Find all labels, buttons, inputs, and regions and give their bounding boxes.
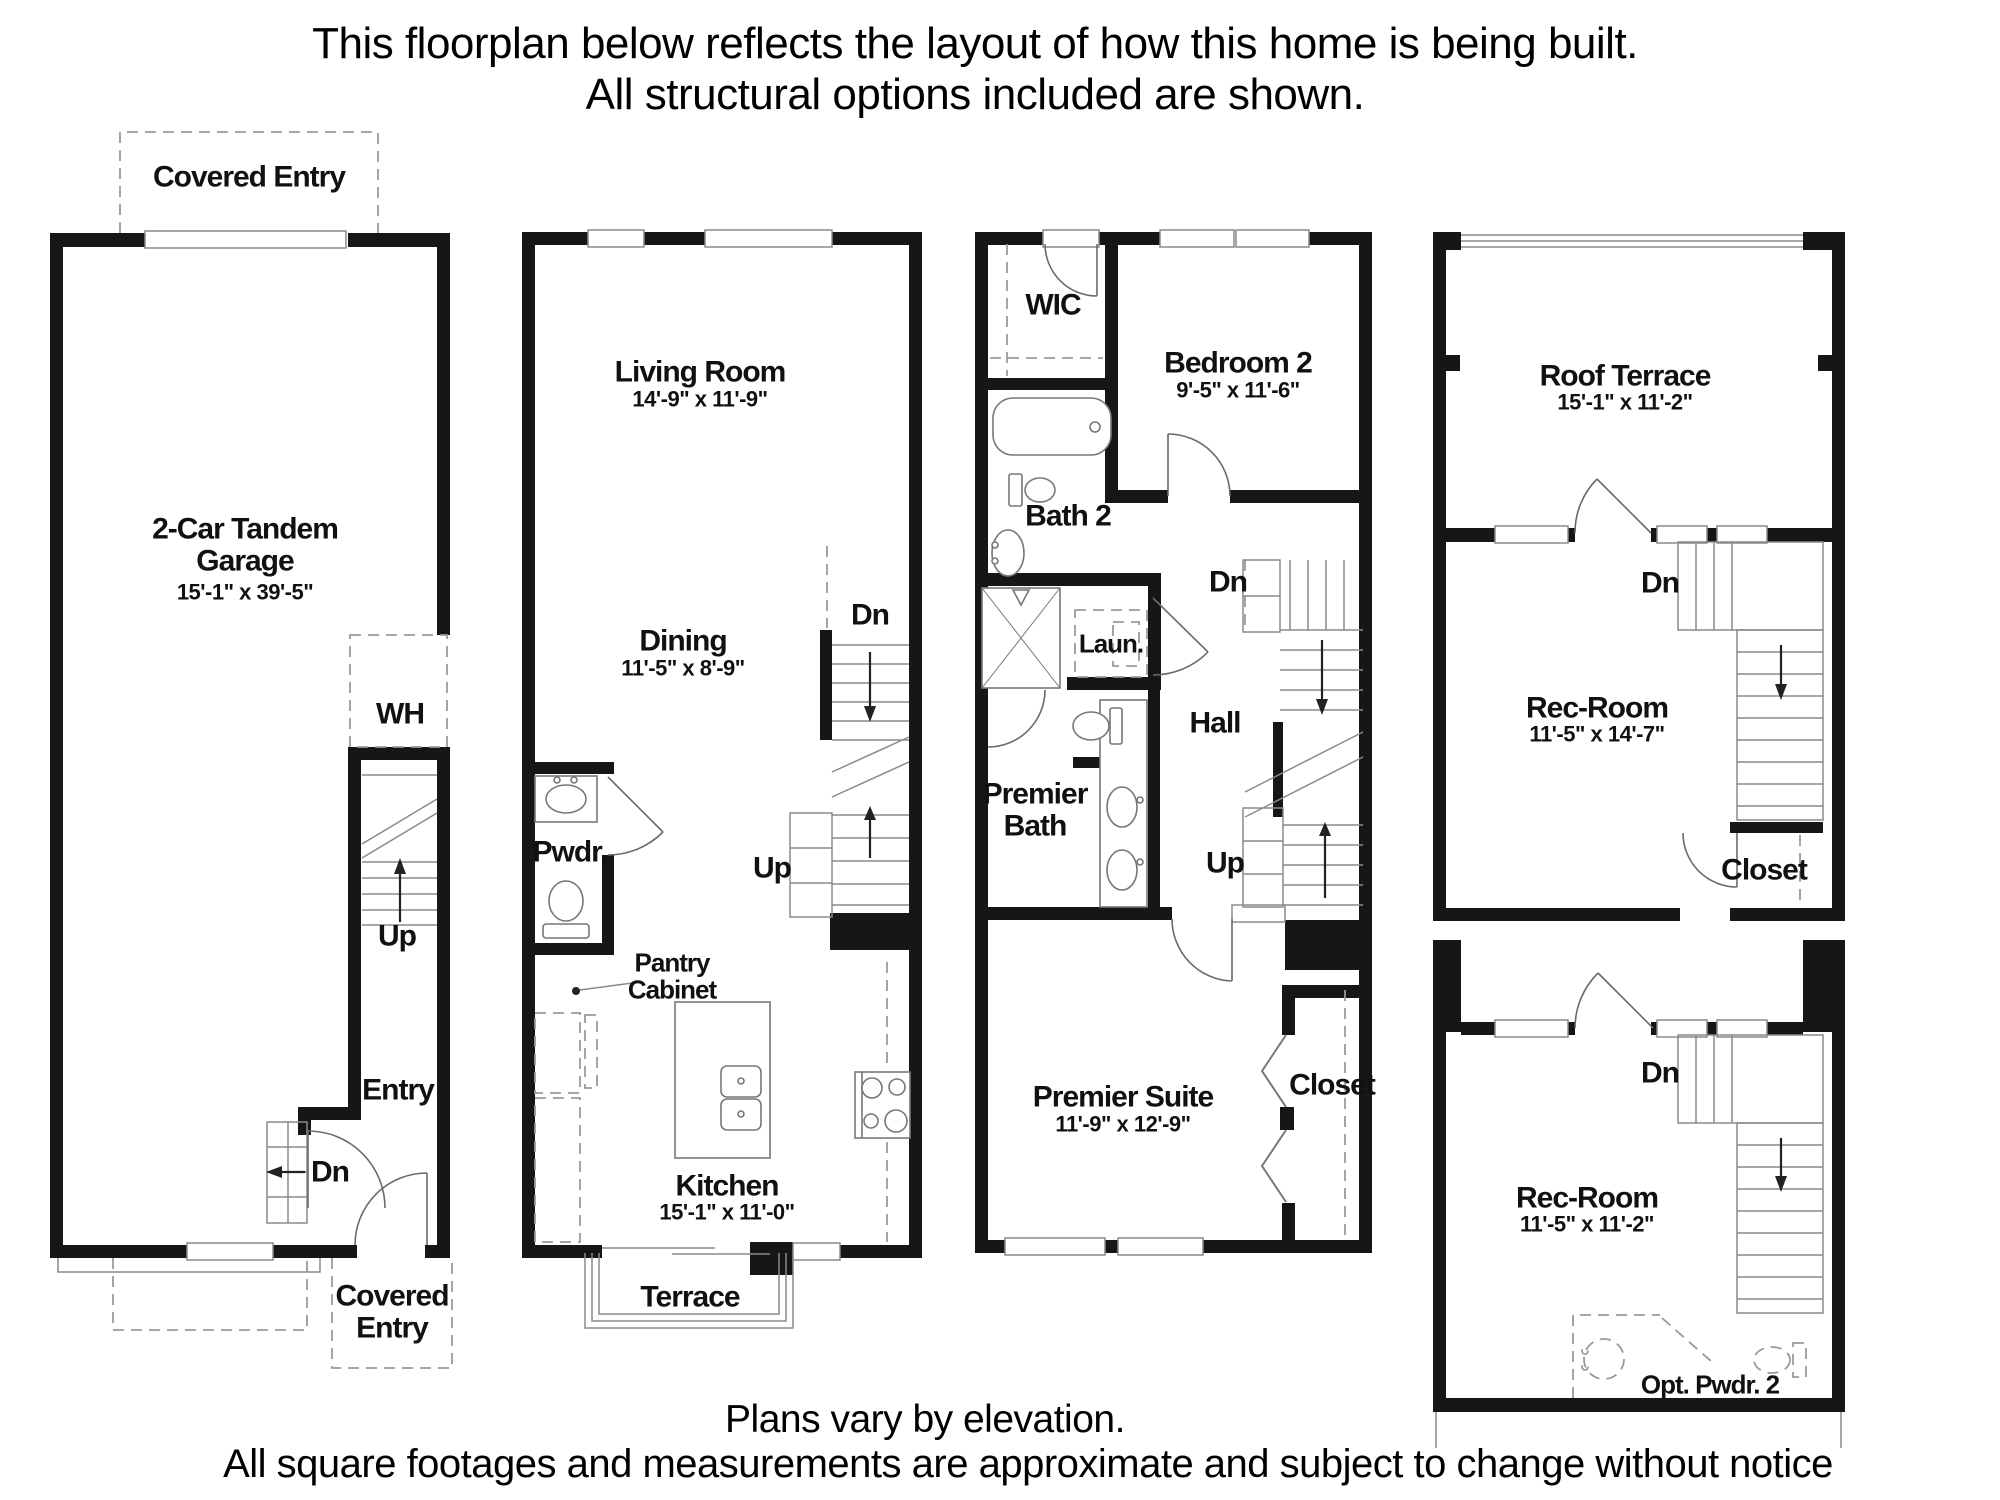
pantry-leader-dot <box>572 987 580 995</box>
label-premier-suite: Premier Suite <box>1033 1081 1213 1113</box>
label-kitchen-dims: 15'-1" x 11'-0" <box>659 1200 794 1223</box>
label-up: Up <box>378 920 416 952</box>
kitchen-island <box>675 1002 770 1158</box>
label-bedroom2: Bedroom 2 <box>1164 347 1312 379</box>
floorplan-garage-level <box>50 132 452 1368</box>
label-premier-bath: Premier Bath <box>960 779 1110 842</box>
label-wh: WH <box>376 698 424 730</box>
rec-upper-stairs <box>1678 542 1823 820</box>
bathtub <box>993 398 1111 455</box>
label-covered-entry-top: Covered Entry <box>153 161 345 193</box>
rec-level-windows <box>1495 526 1767 1037</box>
label-up: Up <box>1206 847 1244 879</box>
label-up: Up <box>753 852 791 884</box>
title-line2: All structural options included are show… <box>0 69 1950 120</box>
stove <box>855 1072 910 1138</box>
label-entry: Entry <box>362 1074 434 1106</box>
label-dn: Dn <box>311 1156 349 1188</box>
label-premier-suite-dims: 11'-9" x 12'-9" <box>1055 1112 1190 1135</box>
dn-arrow-head <box>266 1166 282 1178</box>
label-dn-lower: Dn <box>1641 1057 1679 1089</box>
label-rec-room-lower-dims: 11'-5" x 11'-2" <box>1520 1212 1654 1235</box>
label-roof-terrace: Roof Terrace <box>1540 360 1711 392</box>
up-arrow-head <box>394 858 406 874</box>
closet-bifold-post <box>1280 1107 1294 1130</box>
floorplan-canvas <box>0 0 2000 1500</box>
label-terrace: Terrace <box>640 1281 739 1313</box>
label-dn-upper: Dn <box>1641 567 1679 599</box>
label-pwdr: Pwdr. <box>532 836 607 868</box>
dn-arrow-head <box>1775 684 1787 700</box>
label-wic: WIC <box>1025 289 1080 321</box>
label-living-room-dims: 14'-9" x 11'-9" <box>632 387 767 410</box>
shower <box>982 588 1060 688</box>
floorplan-page: This floorplan below reflects the layout… <box>0 0 2000 1500</box>
powder-room-toilet <box>543 881 589 938</box>
label-bath2: Bath 2 <box>1025 500 1111 532</box>
label-garage-dims: 15'-1" x 39'-5" <box>177 580 313 603</box>
dn-arrow-head <box>1316 699 1328 715</box>
label-laun: Laun. <box>1079 630 1143 657</box>
label-covered-entry-bottom: Covered Entry <box>327 1281 457 1344</box>
label-living-room: Living Room <box>615 356 786 388</box>
footer-line2: All square footages and measurements are… <box>56 1442 2000 1487</box>
garage-openings <box>145 231 346 1260</box>
powder-door-swing <box>608 777 663 855</box>
label-pantry-cabinet: Pantry Cabinet <box>607 950 737 1005</box>
main-stairs <box>790 645 909 917</box>
page-title: This floorplan below reflects the layout… <box>0 18 1950 120</box>
label-closet: Closet <box>1289 1069 1375 1101</box>
label-opt-pwdr2: Opt. Pwdr. 2 <box>1641 1371 1779 1398</box>
rec-lower-stairs <box>1678 1035 1823 1313</box>
premier-bath-toilet <box>1073 708 1122 744</box>
powder-room-sink <box>535 776 597 822</box>
label-dn: Dn <box>1209 566 1247 598</box>
label-dining: Dining <box>639 625 726 657</box>
label-kitchen: Kitchen <box>675 1170 778 1202</box>
label-dining-dims: 11'-5" x 8'-9" <box>621 656 744 679</box>
bedroom-level-stairs <box>1243 560 1363 907</box>
label-bedroom2-dims: 9'-5" x 11'-6" <box>1176 378 1299 401</box>
up-arrow-head <box>864 806 876 820</box>
label-closet: Closet <box>1721 854 1807 886</box>
label-hall: Hall <box>1189 707 1240 739</box>
label-rec-room-lower: Rec-Room <box>1516 1182 1658 1214</box>
label-rec-room-upper-dims: 11'-5" x 14'-7" <box>1529 722 1664 745</box>
label-dn: Dn <box>851 599 889 631</box>
title-line1: This floorplan below reflects the layout… <box>0 18 1950 69</box>
sliding-door-lines <box>602 1248 770 1254</box>
label-roof-terrace-dims: 15'-1" x 11'-2" <box>1557 390 1692 413</box>
label-garage-name: 2-Car Tandem Garage <box>140 514 350 577</box>
rec-level-door-swings <box>1575 479 1737 1028</box>
roof-terrace-railing <box>1436 235 1841 1448</box>
bath2-sink <box>992 530 1024 576</box>
label-rec-room-upper: Rec-Room <box>1526 692 1668 724</box>
dn-arrow-head <box>864 706 876 722</box>
up-arrow-head <box>1319 822 1331 836</box>
footer-line1: Plans vary by elevation. <box>0 1398 1850 1442</box>
